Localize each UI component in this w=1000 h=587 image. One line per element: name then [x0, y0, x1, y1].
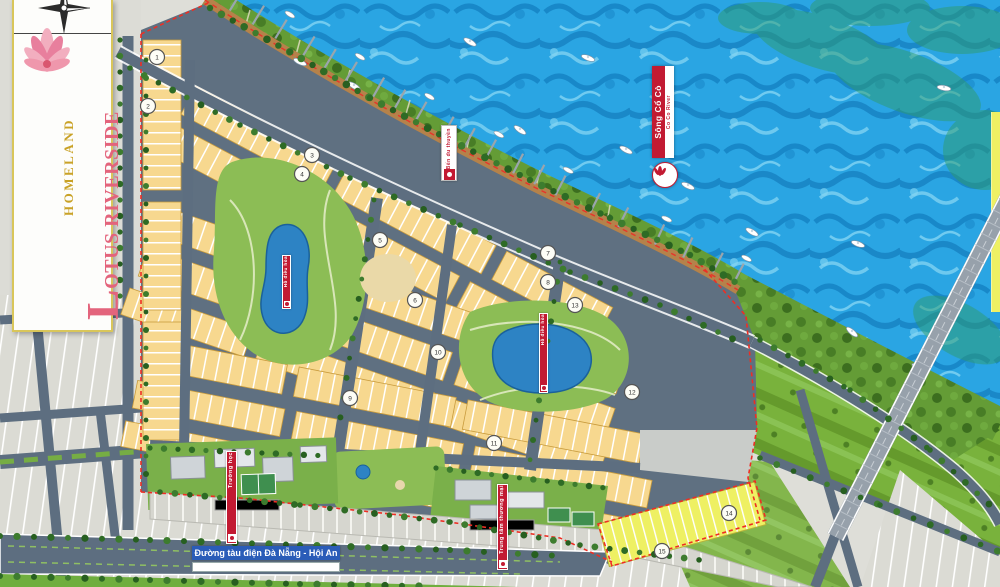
tree-icon — [549, 553, 555, 559]
tree-icon — [144, 382, 149, 387]
svg-text:1: 1 — [155, 54, 159, 61]
tree-icon — [133, 537, 139, 543]
river-name-label: Sông Cổ Cò Co Co River — [652, 66, 674, 158]
tree-icon — [362, 256, 368, 262]
tree-icon — [401, 513, 408, 520]
svg-text:5: 5 — [378, 237, 382, 244]
tree-icon — [230, 17, 236, 23]
tree-icon — [163, 577, 170, 584]
tree-icon — [986, 501, 993, 508]
tree-icon — [447, 466, 453, 472]
pocket-park — [332, 446, 447, 510]
tree-icon — [143, 471, 149, 477]
lake2-label-text: Hồ điều hòa — [541, 314, 546, 345]
tree-icon — [681, 555, 688, 562]
tree-icon — [13, 573, 20, 580]
tree-icon — [911, 515, 917, 521]
tree-icon — [424, 124, 432, 132]
block-marker: 6 — [408, 293, 423, 308]
tree-icon — [184, 95, 190, 101]
tree-icon — [927, 521, 934, 528]
tree-icon — [147, 445, 152, 450]
tree-icon — [197, 538, 204, 545]
tree-icon — [143, 327, 149, 333]
facility-left-icon — [228, 534, 236, 542]
tree-icon — [501, 240, 508, 247]
tree-icon — [504, 165, 512, 173]
tree-icon — [181, 538, 187, 544]
block-marker: 3 — [305, 148, 320, 163]
tree-icon — [287, 452, 292, 457]
tree-icon — [144, 310, 149, 315]
tree-icon — [287, 49, 293, 55]
tree-icon — [545, 478, 550, 483]
svg-text:3: 3 — [310, 152, 314, 159]
tree-icon — [337, 170, 344, 177]
tree-icon — [31, 534, 37, 540]
tree-icon — [515, 551, 521, 557]
tree-icon — [597, 210, 603, 216]
block-marker: 14 — [722, 506, 737, 521]
tree-icon — [390, 107, 396, 113]
lotus-logo-icon — [14, 0, 80, 110]
tree-icon — [435, 213, 441, 219]
tree-icon — [249, 580, 255, 586]
facility-right-text: Trung tâm thương mại — [500, 485, 506, 554]
tree-icon — [773, 461, 780, 468]
tree-icon — [572, 482, 577, 487]
tree-icon — [343, 81, 351, 89]
tree-icon — [517, 475, 522, 480]
tree-icon — [600, 485, 605, 490]
tree-icon — [612, 285, 619, 292]
tree-icon — [143, 363, 149, 369]
tree-icon — [201, 493, 208, 500]
tree-icon — [144, 418, 149, 423]
tree-icon — [291, 501, 298, 508]
tree-icon — [368, 217, 374, 223]
masterplan-map: 123456789101112131415 Sông Cổ Cò Co Co R… — [0, 0, 1000, 587]
tree-icon — [115, 576, 122, 583]
tree-icon — [301, 452, 307, 458]
river-name-vi: Sông Cổ Cò — [654, 85, 663, 139]
block-marker: 10 — [431, 345, 446, 360]
svg-text:2: 2 — [146, 103, 150, 110]
tree-icon — [757, 337, 763, 343]
tree-icon — [295, 150, 301, 156]
tree-icon — [697, 258, 705, 266]
tree-icon — [627, 291, 633, 297]
tree-icon — [217, 495, 223, 501]
tree-icon — [771, 344, 778, 351]
svg-text:10: 10 — [434, 349, 442, 356]
tree-icon — [144, 346, 149, 351]
svg-text:13: 13 — [571, 302, 579, 309]
tree-icon — [813, 368, 819, 374]
tree-icon — [420, 206, 427, 213]
tree-icon — [974, 490, 980, 496]
tree-icon — [247, 498, 253, 504]
tree-icon — [962, 479, 969, 486]
tree-icon — [457, 222, 463, 228]
tree-icon — [841, 384, 847, 390]
tree-icon — [406, 200, 412, 206]
tree-icon — [791, 468, 797, 474]
tree-icon — [283, 581, 289, 587]
tree-icon — [147, 577, 153, 583]
svg-text:11: 11 — [491, 440, 498, 447]
tree-icon — [187, 492, 193, 498]
tree-icon — [198, 101, 205, 108]
tree-icon — [531, 551, 538, 558]
tree-icon — [263, 36, 271, 44]
block-marker: 12 — [625, 385, 640, 400]
sports-court — [548, 508, 570, 522]
tree-icon — [207, 5, 213, 11]
tree-icon — [371, 510, 378, 517]
tree-icon — [356, 296, 362, 302]
tree-icon — [344, 375, 350, 381]
tree-icon — [642, 296, 649, 303]
tree-icon — [528, 457, 533, 462]
block-marker: 4 — [295, 167, 310, 182]
tree-icon — [144, 238, 149, 243]
tram-line-label: Đường tàu điện Đà Nẵng - Hội An — [192, 546, 340, 560]
tree-icon — [327, 506, 333, 512]
tree-icon — [731, 279, 737, 285]
tree-icon — [607, 215, 613, 221]
svg-text:9: 9 — [348, 395, 352, 402]
tree-icon — [297, 502, 303, 508]
tree-icon — [582, 274, 589, 281]
tree-icon — [416, 516, 422, 522]
tree-icon — [944, 528, 950, 534]
tree-icon — [840, 487, 847, 494]
project-banner: HOMELAND LOTUS RIVERSIDE — [12, 0, 113, 332]
tree-icon — [475, 470, 481, 476]
tree-icon — [530, 437, 536, 443]
tree-icon — [720, 271, 728, 279]
tree-icon — [696, 557, 702, 563]
tree-icon — [297, 581, 303, 587]
tree-icon — [461, 521, 468, 528]
marina-icon — [444, 169, 455, 180]
tree-icon — [665, 241, 673, 249]
tree-icon — [365, 237, 370, 242]
tree-icon — [597, 280, 603, 286]
tree-icon — [502, 473, 508, 479]
tree-icon — [347, 356, 352, 361]
tree-icon — [353, 316, 358, 321]
tree-icon — [350, 335, 356, 341]
svg-text:8: 8 — [546, 279, 550, 286]
block-marker: 7 — [541, 246, 556, 261]
tree-icon — [13, 533, 20, 540]
tree-icon — [226, 116, 233, 123]
tree-icon — [481, 549, 487, 555]
tree-icon — [630, 226, 636, 232]
tree-icon — [337, 414, 343, 420]
tree-icon — [621, 547, 628, 554]
tree-icon — [143, 399, 149, 405]
tree-icon — [657, 302, 663, 308]
tree-icon — [65, 535, 71, 541]
tree-icon — [567, 269, 573, 275]
tree-icon — [431, 517, 438, 524]
svg-text:4: 4 — [300, 171, 304, 178]
tree-icon — [938, 457, 945, 464]
tree-icon — [552, 299, 557, 304]
tree-icon — [169, 87, 176, 94]
tree-icon — [560, 266, 567, 273]
tram-line-label-box — [192, 562, 340, 572]
tree-icon — [143, 255, 149, 261]
tree-icon — [143, 183, 149, 189]
tree-icon — [534, 418, 539, 423]
tree-icon — [47, 534, 54, 541]
tree-icon — [144, 94, 149, 99]
svg-text:6: 6 — [413, 297, 417, 304]
tree-icon — [217, 448, 223, 454]
tree-icon — [561, 193, 569, 201]
tree-icon — [847, 387, 853, 393]
project-name: LOTUS RIVERSIDE — [76, 30, 129, 320]
tree-icon — [824, 481, 830, 487]
tree-icon — [231, 579, 238, 586]
block-marker: 1 — [150, 50, 165, 65]
svg-text:12: 12 — [628, 389, 636, 396]
tree-icon — [873, 406, 879, 412]
tree-icon — [332, 75, 338, 81]
tree-icon — [450, 219, 457, 226]
tree-icon — [447, 519, 453, 525]
tree-icon — [215, 539, 221, 545]
tree-icon — [320, 68, 328, 76]
tree-icon — [115, 536, 122, 543]
tree-icon — [885, 415, 892, 422]
tree-icon — [461, 469, 466, 474]
tree-icon — [978, 542, 984, 548]
tree-icon — [538, 182, 546, 190]
tree-icon — [280, 142, 287, 149]
tree-icon — [642, 231, 650, 239]
tree-icon — [960, 534, 967, 541]
svg-text:14: 14 — [725, 510, 733, 517]
tree-icon — [47, 574, 54, 581]
tree-icon — [175, 447, 180, 452]
tree-icon — [265, 580, 272, 587]
tree-icon — [477, 524, 483, 530]
tree-icon — [240, 23, 248, 31]
tree-icon — [143, 147, 149, 153]
tree-icon — [157, 489, 163, 495]
tree-icon — [487, 235, 493, 241]
tree-icon — [144, 454, 149, 459]
tree-icon — [470, 148, 476, 154]
svg-text:15: 15 — [658, 548, 666, 555]
tree-icon — [548, 318, 554, 324]
tree-icon — [433, 465, 438, 470]
tree-icon — [341, 507, 348, 514]
svg-text:7: 7 — [546, 250, 550, 257]
tree-icon — [391, 193, 398, 200]
tree-icon — [315, 453, 320, 458]
tree-icon — [558, 480, 564, 486]
tree-icon — [827, 375, 834, 382]
tree-icon — [785, 353, 791, 359]
tree-icon — [433, 547, 439, 553]
tree-icon — [372, 198, 377, 203]
tree-icon — [297, 55, 305, 63]
tree-icon — [144, 58, 149, 63]
tree-icon — [361, 181, 368, 188]
tree-icon — [212, 109, 218, 115]
block-marker: 11 — [487, 436, 502, 451]
tree-icon — [558, 260, 563, 265]
tree-icon — [324, 164, 330, 170]
tree-icon — [81, 535, 88, 542]
tree-icon — [489, 472, 494, 477]
tree-icon — [99, 536, 105, 542]
tree-icon — [275, 42, 281, 48]
tree-icon — [359, 277, 364, 282]
tree-icon — [471, 228, 478, 235]
tree-icon — [678, 248, 684, 254]
tree-icon — [133, 577, 139, 583]
block-marker: 8 — [541, 275, 556, 290]
tree-icon — [367, 95, 373, 101]
tree-icon — [143, 291, 149, 297]
tree-icon — [143, 219, 149, 225]
tree-icon — [309, 62, 315, 68]
block-marker: 15 — [655, 544, 670, 559]
tree-icon — [381, 544, 388, 551]
tree-icon — [607, 546, 613, 552]
tree-icon — [365, 544, 371, 550]
tree-icon — [413, 119, 419, 125]
tree-icon — [143, 435, 149, 441]
tree-icon — [520, 532, 527, 539]
tree-icon — [144, 274, 149, 279]
tree-icon — [536, 535, 542, 541]
lake1-label: Hồ điều hòa — [282, 255, 291, 309]
tree-icon — [536, 397, 542, 403]
tree-icon — [517, 172, 523, 178]
tree-icon — [527, 177, 533, 183]
tree-icon — [312, 503, 319, 510]
facility-left-label: Trường học — [226, 451, 237, 544]
tree-icon — [172, 490, 179, 497]
tree-icon — [415, 545, 422, 552]
tree-icon — [709, 265, 715, 271]
block-marker: 5 — [373, 233, 388, 248]
tree-icon — [686, 316, 692, 322]
tree-icon — [347, 543, 354, 550]
tree-icon — [671, 308, 678, 315]
tree-icon — [399, 545, 405, 551]
tree-icon — [577, 542, 583, 548]
tree-icon — [893, 508, 900, 515]
sand-plaza — [360, 254, 416, 302]
tree-icon — [161, 445, 167, 451]
tree-icon — [574, 199, 580, 205]
lake1-label-text: Hồ điều hòa — [284, 256, 289, 287]
tree-icon — [31, 574, 37, 580]
tree-icon — [163, 537, 170, 544]
tree-icon — [189, 447, 195, 453]
facility-left-text: Trường học — [229, 452, 235, 488]
river-name-en: Co Co River — [667, 95, 672, 129]
tree-icon — [481, 154, 489, 162]
tree-icon — [147, 537, 153, 543]
tree-icon — [237, 122, 243, 128]
tree-icon — [516, 247, 522, 253]
block-marker: 2 — [141, 99, 156, 114]
tree-icon — [687, 252, 693, 258]
tree-icon — [401, 112, 409, 120]
tree-icon — [463, 547, 470, 554]
tree-icon — [447, 547, 453, 553]
tree-icon — [197, 578, 204, 585]
tree-icon — [591, 543, 598, 550]
tree-icon — [493, 160, 499, 166]
tree-icon — [585, 204, 593, 212]
tree-icon — [65, 575, 71, 581]
tree-icon — [277, 500, 283, 506]
tree-icon — [530, 476, 536, 482]
tree-icon — [565, 540, 571, 546]
tree-icon — [858, 495, 864, 501]
tree-icon — [245, 449, 251, 455]
tree-icon — [927, 447, 933, 453]
tree-icon — [259, 450, 264, 455]
small-pond — [356, 465, 370, 479]
tree-icon — [261, 498, 268, 505]
tree-icon — [203, 448, 208, 453]
tree-icon — [911, 435, 918, 442]
tree-icon — [700, 322, 707, 329]
tree-icon — [654, 237, 660, 243]
tree-icon — [859, 396, 866, 403]
tree-icon — [951, 469, 957, 475]
facility-right-label: Trung tâm thương mại — [497, 484, 508, 570]
lake2-label: Hồ điều hòa — [539, 313, 548, 393]
tree-icon — [357, 509, 363, 515]
tree-icon — [347, 175, 353, 181]
tree-icon — [550, 537, 557, 544]
tree-icon — [156, 80, 162, 86]
tree-icon — [266, 136, 272, 142]
tree-icon — [729, 335, 736, 342]
tree-icon — [354, 88, 360, 94]
tree-icon — [387, 512, 393, 518]
tree-icon — [273, 450, 279, 456]
tree-icon — [637, 550, 643, 556]
brand-name: HOMELAND — [61, 106, 77, 216]
tree-icon — [377, 188, 383, 194]
tree-icon — [586, 483, 592, 489]
tree-icon — [877, 502, 883, 508]
tree-icon — [378, 100, 386, 108]
facility-right-icon — [499, 560, 507, 568]
river-label-logo-icon — [652, 162, 678, 188]
tree-icon — [807, 474, 814, 481]
tree-icon — [898, 426, 904, 432]
tree-icon — [252, 30, 258, 36]
tree-icon — [715, 329, 721, 335]
lake2-icon — [541, 385, 547, 391]
tree-icon — [618, 220, 626, 228]
